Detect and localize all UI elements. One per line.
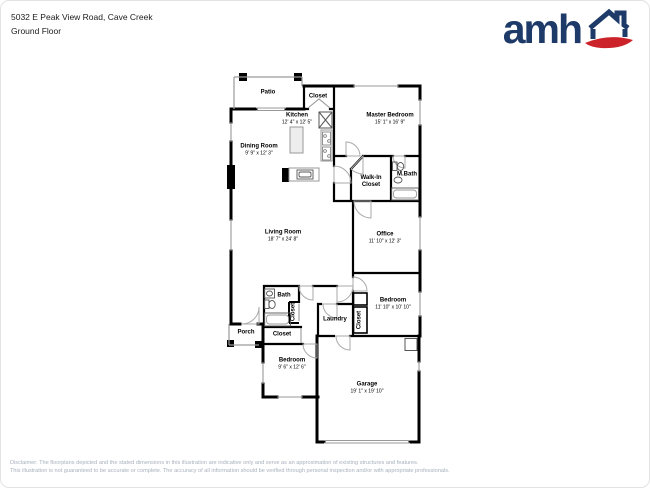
room-label-living-room: Living Room 18' 7" x 24' 8"	[265, 230, 301, 243]
toilet-icon	[265, 300, 276, 309]
counter-wall	[282, 168, 289, 182]
room-label-bedroom-right: Bedroom 11' 10" x 10' 10"	[375, 298, 410, 311]
disclaimer-line2: This illustration is not guaranteed to b…	[10, 467, 450, 475]
room-label-kitchen: Kitchen 12' 4" x 12' 5"	[282, 113, 312, 126]
room-label-garage: Garage 19' 1" x 19' 10"	[351, 382, 384, 395]
refrigerator-icon	[319, 112, 332, 128]
room-label-dining-room: Dining Room 9' 9" x 12' 3"	[240, 144, 277, 157]
room-label-office: Office 11' 10" x 12' 3"	[369, 232, 402, 245]
exterior-walls	[231, 86, 420, 442]
room-label-bedroom-left: Bedroom 9' 6" x 12' 6"	[278, 358, 305, 371]
bathtub-icon	[392, 188, 419, 200]
room-label-laundry: Laundry	[323, 317, 347, 324]
bathtub-icon	[265, 313, 291, 326]
kitchen-island	[290, 127, 303, 153]
kitchen-sink-icon	[297, 170, 313, 179]
room-label-porch: Porch	[237, 330, 254, 337]
disclaimer-line1: Disclaimer: The floorplans depicted and …	[10, 459, 450, 467]
water-heater-icon	[405, 339, 417, 351]
room-label-walk-in-closet: Walk-In Closet	[357, 175, 385, 189]
room-label-master-bedroom: Master Bedroom 15' 1" x 16' 9"	[366, 113, 413, 126]
windows	[231, 86, 420, 443]
room-label-closet-bath: Closet	[291, 303, 298, 321]
disclaimer: Disclaimer: The floorplans depicted and …	[10, 459, 450, 475]
room-label-m-bath: M.Bath	[397, 172, 417, 179]
room-label-closet-hall: Closet	[273, 332, 291, 339]
room-label-bath: Bath	[277, 293, 290, 300]
room-label-closet-top: Closet	[309, 94, 327, 101]
porch-post	[227, 340, 234, 347]
stove-icon	[321, 130, 332, 161]
floor-plan-drawing	[1, 1, 650, 488]
closet-doors	[299, 99, 330, 343]
room-label-closet-bedroom: Closet	[357, 311, 364, 329]
floorplan-page: 5032 E Peak View Road, Cave Creek Ground…	[0, 0, 650, 488]
room-label-patio: Patio	[261, 90, 276, 97]
sink-icon	[265, 289, 275, 298]
